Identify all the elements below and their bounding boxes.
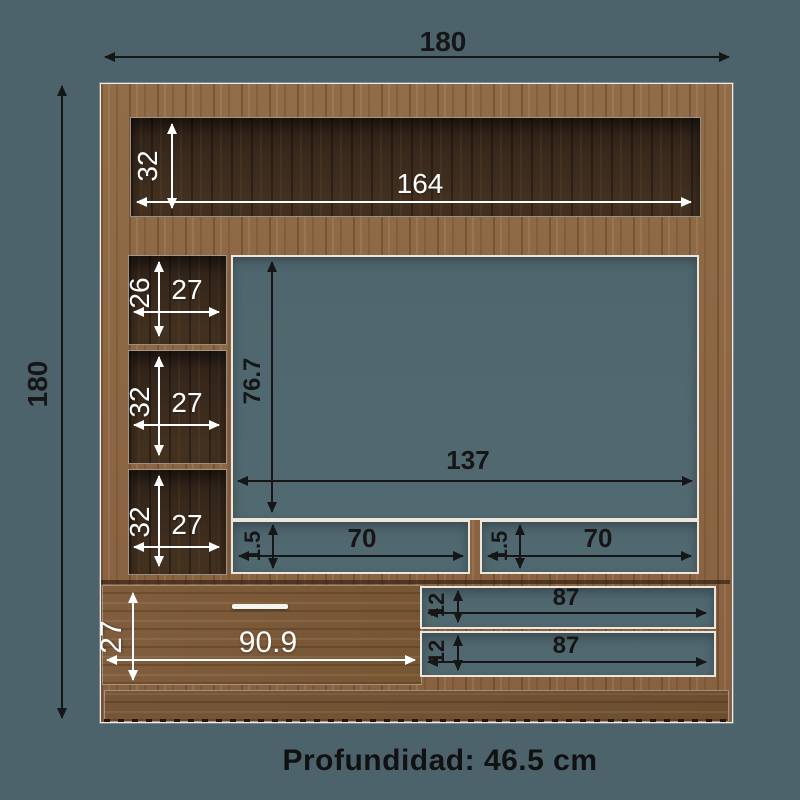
cubby1-width-arrow — [133, 306, 220, 318]
cubby2-width-arrow — [133, 419, 220, 431]
cubby1-height-label: 26 — [126, 277, 154, 308]
media-slot-right-height-arrow — [514, 524, 526, 569]
tv-width-label: 137 — [446, 447, 489, 473]
plinth — [104, 690, 729, 722]
overall-width-label: 180 — [420, 28, 467, 56]
cubby3-width-arrow — [133, 541, 220, 553]
depth-note: Profundidad: 46.5 cm — [282, 744, 597, 778]
media-slot-right-width-label: 70 — [584, 525, 613, 551]
tv-width-arrow — [237, 475, 693, 487]
cubby1-width-label: 27 — [171, 276, 202, 304]
cubby3-height-label: 32 — [126, 506, 154, 537]
media-slot-left-height-arrow — [267, 524, 279, 569]
cabinet-top-groove — [101, 580, 730, 584]
overall-height-label: 180 — [24, 361, 52, 408]
bottom-shelf2-width-label: 87 — [553, 634, 580, 658]
drawer-height-label: 27 — [97, 620, 127, 653]
drawer-height-arrow — [127, 592, 139, 681]
top-shelf-height-label: 32 — [134, 150, 162, 181]
drawer-width-label: 90.9 — [239, 628, 297, 658]
tv-height-label: 76.7 — [241, 358, 265, 405]
furniture-dimension-diagram: 180 180 32 164 26 27 32 27 32 27 76.7 13… — [0, 0, 800, 800]
cubby3-width-label: 27 — [171, 511, 202, 539]
cubby2-width-label: 27 — [171, 389, 202, 417]
top-shelf-width-label: 164 — [397, 170, 444, 198]
bottom-shelf1-width-label: 87 — [553, 586, 580, 610]
plinth-shadow-edge — [104, 719, 727, 722]
drawer-handle — [232, 604, 288, 609]
media-slot-left-width-label: 70 — [348, 525, 377, 551]
overall-height-arrow — [56, 85, 68, 719]
overall-width-arrow — [104, 51, 730, 63]
cubby2-height-label: 32 — [126, 386, 154, 417]
